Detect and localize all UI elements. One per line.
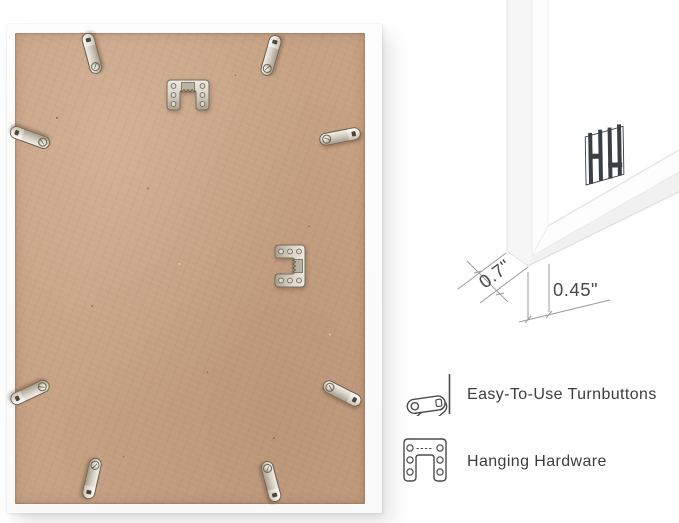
turnbutton [8, 377, 52, 407]
turnbutton-slot [272, 492, 278, 497]
screw-icon [321, 133, 332, 144]
turnbutton [80, 31, 103, 75]
screw-icon [324, 381, 336, 393]
screw-icon [90, 61, 101, 72]
turnbutton-slot [14, 129, 19, 135]
mdf-backing-board [15, 33, 365, 504]
moulding-face-vertical [532, 0, 548, 256]
screw-icon [262, 462, 273, 473]
moulding-side [507, 0, 532, 266]
frame-back-photo [7, 24, 382, 513]
turnbutton-slot [14, 395, 20, 401]
dimension-side-label: 0.7" [475, 255, 515, 292]
frame-corner-photo: 0.7" 0.45" [440, 0, 679, 333]
turnbutton-slot [272, 39, 278, 44]
feature-label-turnbuttons: Easy-To-Use Turnbuttons [467, 385, 657, 405]
turnbutton-icon [399, 372, 453, 416]
turnbutton [318, 126, 362, 147]
screw-icon [37, 136, 49, 148]
screw-icon [262, 62, 273, 73]
hanging-hardware-icon [402, 437, 448, 483]
turnbutton-slot [86, 489, 92, 494]
turnbutton [81, 456, 103, 500]
turnbutton [8, 124, 52, 151]
screw-icon [90, 459, 101, 470]
dimension-face-label: 0.45" [553, 279, 598, 300]
feature-label-hanging-hardware: Hanging Hardware [467, 452, 607, 472]
hanging-hardware-portrait [166, 77, 210, 113]
turnbutton [259, 459, 282, 503]
screw-icon [36, 380, 48, 392]
turnbutton [259, 33, 283, 77]
turnbutton-slot [351, 130, 356, 136]
turnbutton-slot [85, 37, 91, 42]
hanging-hardware-landscape [272, 244, 308, 288]
product-infographic: 0.7" 0.45" Easy-To-Use Turnbuttons Hangi… [0, 0, 679, 523]
turnbutton-slot [352, 396, 358, 402]
turnbutton [320, 378, 363, 409]
